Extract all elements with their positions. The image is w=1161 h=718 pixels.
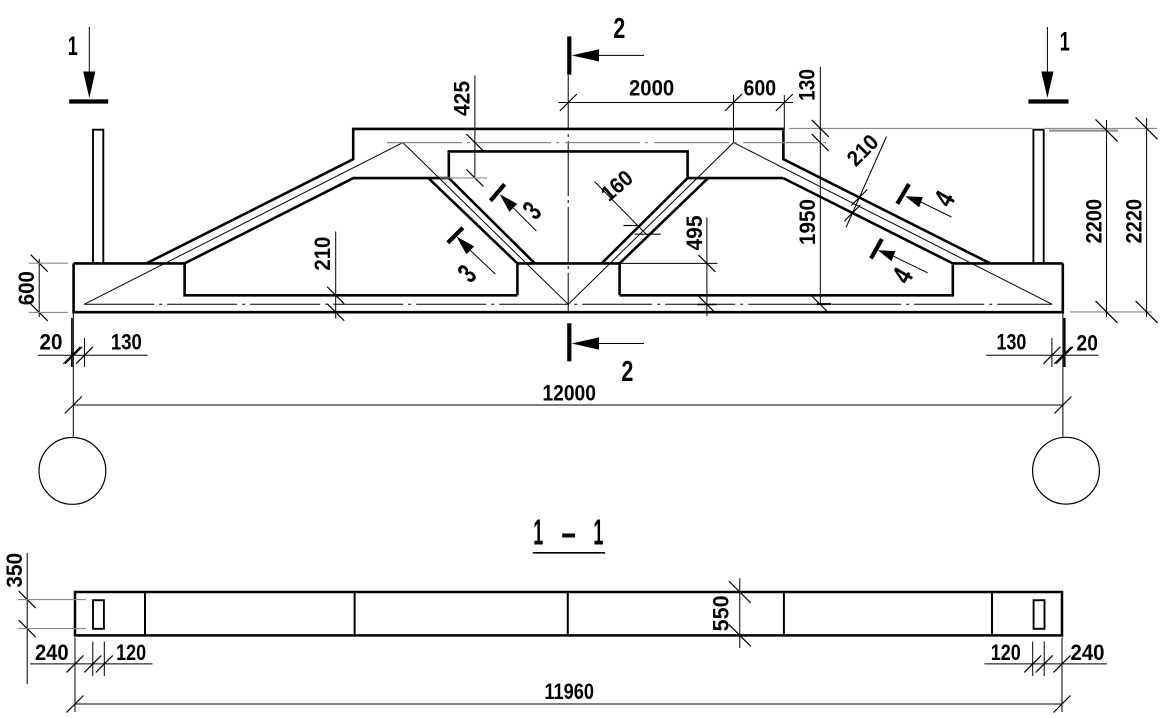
svg-text:1: 1: [68, 31, 78, 61]
svg-text:240: 240: [35, 640, 69, 665]
svg-text:12000: 12000: [542, 380, 596, 405]
svg-text:350: 350: [2, 553, 27, 588]
svg-text:600: 600: [744, 75, 777, 100]
svg-text:210: 210: [310, 237, 335, 271]
svg-text:1: 1: [1060, 26, 1070, 56]
svg-text:120: 120: [116, 640, 146, 665]
svg-text:2: 2: [621, 356, 633, 388]
svg-text:2: 2: [613, 13, 625, 45]
svg-text:495: 495: [682, 216, 707, 251]
svg-text:1: 1: [533, 511, 543, 552]
svg-text:120: 120: [991, 640, 1021, 665]
svg-text:130: 130: [997, 330, 1027, 355]
svg-text:1: 1: [593, 511, 603, 552]
svg-text:2200: 2200: [1082, 199, 1107, 244]
svg-text:2000: 2000: [629, 75, 674, 100]
svg-text:425: 425: [449, 81, 474, 116]
svg-text:240: 240: [1071, 640, 1105, 665]
svg-text:130: 130: [111, 330, 142, 355]
svg-text:11960: 11960: [544, 679, 594, 704]
svg-text:550: 550: [708, 595, 733, 631]
svg-text:20: 20: [1077, 330, 1098, 355]
svg-text:2220: 2220: [1121, 199, 1146, 244]
svg-text:20: 20: [40, 330, 63, 355]
svg-text:1950: 1950: [795, 199, 820, 245]
svg-text:600: 600: [14, 271, 39, 305]
svg-text:130: 130: [794, 69, 819, 101]
